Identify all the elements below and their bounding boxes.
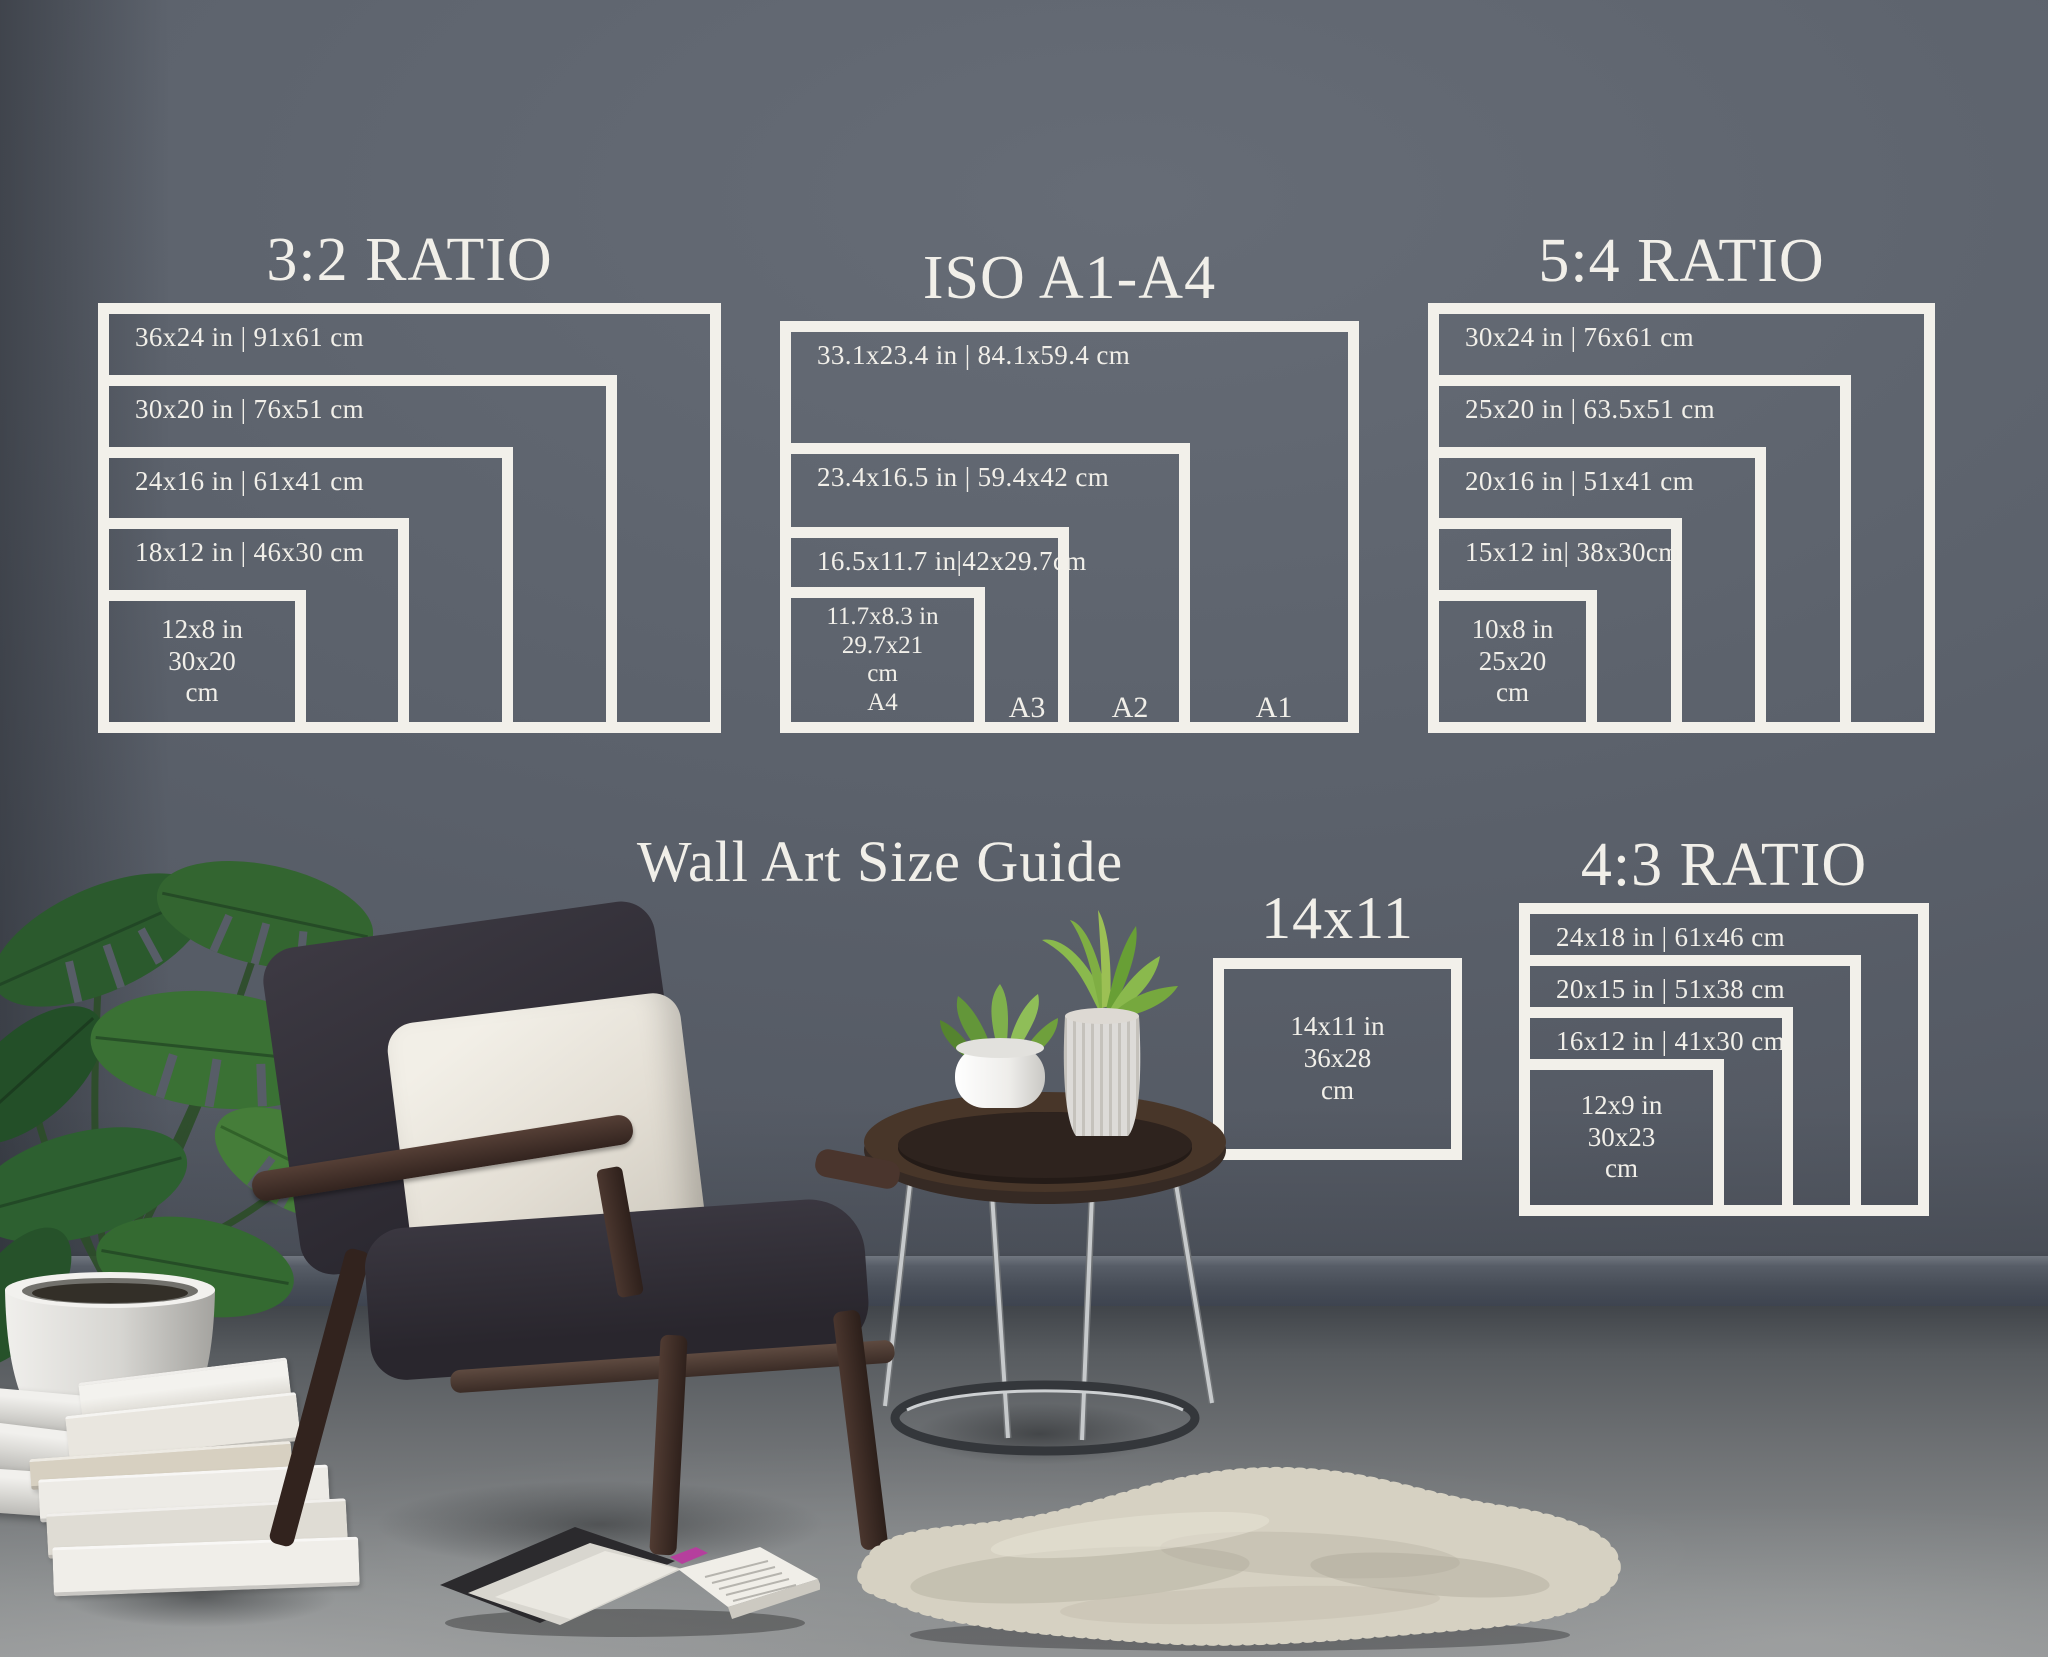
- size-guide-14x11: 14x11 in 36x28 cm: [1213, 958, 1462, 1160]
- frame-12x9: 12x9 in 30x23 cm: [1519, 1059, 1724, 1216]
- frame-size-label: 25x20 in | 63.5x51 cm: [1465, 394, 1715, 425]
- chair-armrest-right: [813, 1147, 902, 1191]
- label-line: cm: [867, 660, 898, 689]
- size-guide-3-2: 36x24 in | 91x61 cm 30x20 in | 76x51 cm …: [98, 303, 721, 733]
- rug-graphic: [830, 1435, 1660, 1657]
- frame-size-label: 12x8 in 30x20 cm: [109, 601, 295, 722]
- label-line: 25x20: [1479, 646, 1547, 678]
- section-title-4-3: 4:3 RATIO: [1519, 830, 1929, 901]
- frame-size-label: 16.5x11.7 in|42x29.7cm: [817, 546, 1087, 577]
- frame-14x11: 14x11 in 36x28 cm: [1213, 958, 1462, 1160]
- frame-12x8: 12x8 in 30x20 cm: [98, 590, 306, 733]
- ribbed-vase: [1064, 1008, 1140, 1136]
- label-line: cm: [1496, 677, 1529, 709]
- frame-size-label: 14x11 in 36x28 cm: [1224, 969, 1451, 1149]
- label-line: cm: [186, 677, 219, 709]
- side-table-graphic: [860, 898, 1240, 1458]
- frame-size-label: 36x24 in | 91x61 cm: [135, 322, 364, 353]
- label-line: 12x9 in: [1581, 1090, 1663, 1122]
- size-guide-iso: 33.1x23.4 in | 84.1x59.4 cm 23.4x16.5 in…: [780, 321, 1359, 733]
- label-line: 12x8 in: [161, 614, 243, 646]
- frame-size-label: 12x9 in 30x23 cm: [1530, 1070, 1713, 1205]
- section-title-3-2: 3:2 RATIO: [98, 225, 721, 296]
- corner-label-a1: A1: [1256, 691, 1293, 725]
- label-line: cm: [1321, 1075, 1354, 1107]
- pink-bookmark: [670, 1547, 708, 1564]
- wall-art-size-guide-poster: 3:2 RATIO ISO A1-A4 5:4 RATIO Wall Art S…: [0, 0, 2048, 1657]
- section-title-14x11: 14x11: [1213, 884, 1462, 953]
- corner-label-a2: A2: [1112, 691, 1149, 725]
- aloe-plant: [1042, 910, 1178, 1018]
- label-line: 29.7x21: [842, 632, 923, 661]
- frame-size-label: 24x16 in | 61x41 cm: [135, 466, 364, 497]
- book-shadow: [445, 1609, 805, 1637]
- label-line: A4: [867, 689, 898, 718]
- succulent-pot: [940, 984, 1058, 1108]
- frame-size-label: 15x12 in| 38x30cm: [1465, 537, 1680, 568]
- sheepskin-rug: [830, 1435, 1660, 1657]
- frame-10x8: 10x8 in 25x20 cm: [1428, 590, 1597, 733]
- frame-size-label: 20x15 in | 51x38 cm: [1556, 974, 1785, 1005]
- poster-title: Wall Art Size Guide: [460, 828, 1300, 895]
- frame-a4: 11.7x8.3 in 29.7x21 cm A4: [780, 587, 985, 733]
- label-line: 10x8 in: [1472, 614, 1554, 646]
- chair-leg-back: [268, 1247, 371, 1548]
- open-book-graphic: [420, 1505, 820, 1645]
- size-guide-4-3: 24x18 in | 61x46 cm 20x15 in | 51x38 cm …: [1519, 903, 1929, 1216]
- frame-size-label: 18x12 in | 46x30 cm: [135, 537, 364, 568]
- label-line: 36x28: [1304, 1043, 1372, 1075]
- frame-size-label: 16x12 in | 41x30 cm: [1556, 1026, 1785, 1057]
- section-title-iso: ISO A1-A4: [780, 243, 1359, 314]
- frame-size-label: 20x16 in | 51x41 cm: [1465, 466, 1694, 497]
- armchair: [255, 915, 900, 1570]
- label-line: 30x23: [1588, 1122, 1656, 1154]
- corner-label-a3: A3: [1009, 691, 1046, 725]
- frame-size-label: 30x24 in | 76x61 cm: [1465, 322, 1694, 353]
- frame-size-label: 33.1x23.4 in | 84.1x59.4 cm: [817, 340, 1130, 371]
- section-title-5-4: 5:4 RATIO: [1428, 226, 1935, 297]
- frame-size-label: 23.4x16.5 in | 59.4x42 cm: [817, 462, 1109, 493]
- side-table: [860, 898, 1240, 1458]
- size-guide-5-4: 30x24 in | 76x61 cm 25x20 in | 63.5x51 c…: [1428, 303, 1935, 733]
- frame-size-label: 10x8 in 25x20 cm: [1439, 601, 1586, 722]
- frame-size-label: 11.7x8.3 in 29.7x21 cm A4: [791, 598, 974, 722]
- label-line: cm: [1605, 1153, 1638, 1185]
- label-line: 11.7x8.3 in: [826, 603, 938, 632]
- frame-size-label: 24x18 in | 61x46 cm: [1556, 922, 1785, 953]
- table-top: [864, 1092, 1226, 1204]
- open-book: [420, 1505, 820, 1645]
- frame-size-label: 30x20 in | 76x51 cm: [135, 394, 364, 425]
- label-line: 30x20: [168, 646, 236, 678]
- label-line: 14x11 in: [1290, 1011, 1384, 1043]
